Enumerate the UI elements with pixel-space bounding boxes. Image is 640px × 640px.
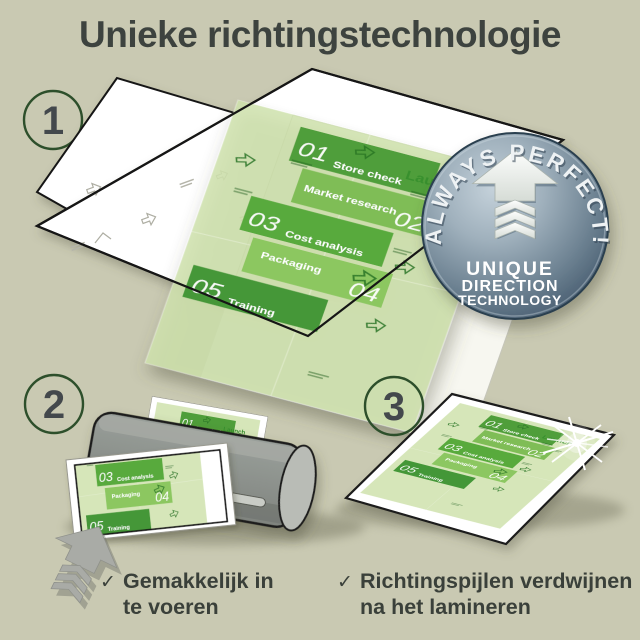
step-1-number: 1 xyxy=(42,99,64,143)
step-2-number: 2 xyxy=(43,383,65,427)
caption-feed-line2: te voeren xyxy=(123,595,219,619)
step-3-number: 3 xyxy=(383,385,405,429)
caption-feed-line1: Gemakkelijk in xyxy=(123,569,274,593)
check-icon: ✓ xyxy=(337,572,353,593)
check-icon: ✓ xyxy=(100,572,116,593)
caption-result-line1: Richtingspijlen verdwijnen xyxy=(360,569,632,593)
badge-line-unique: UNIQUE xyxy=(466,258,554,280)
badge-line-technology: TECHNOLOGY xyxy=(458,292,562,308)
laminator-infographic: 01 Store check Market research 02 03 Cos… xyxy=(0,0,640,640)
caption-result-line2: na het lamineren xyxy=(360,595,531,619)
page-title: Unieke richtingstechnologie xyxy=(79,14,561,55)
